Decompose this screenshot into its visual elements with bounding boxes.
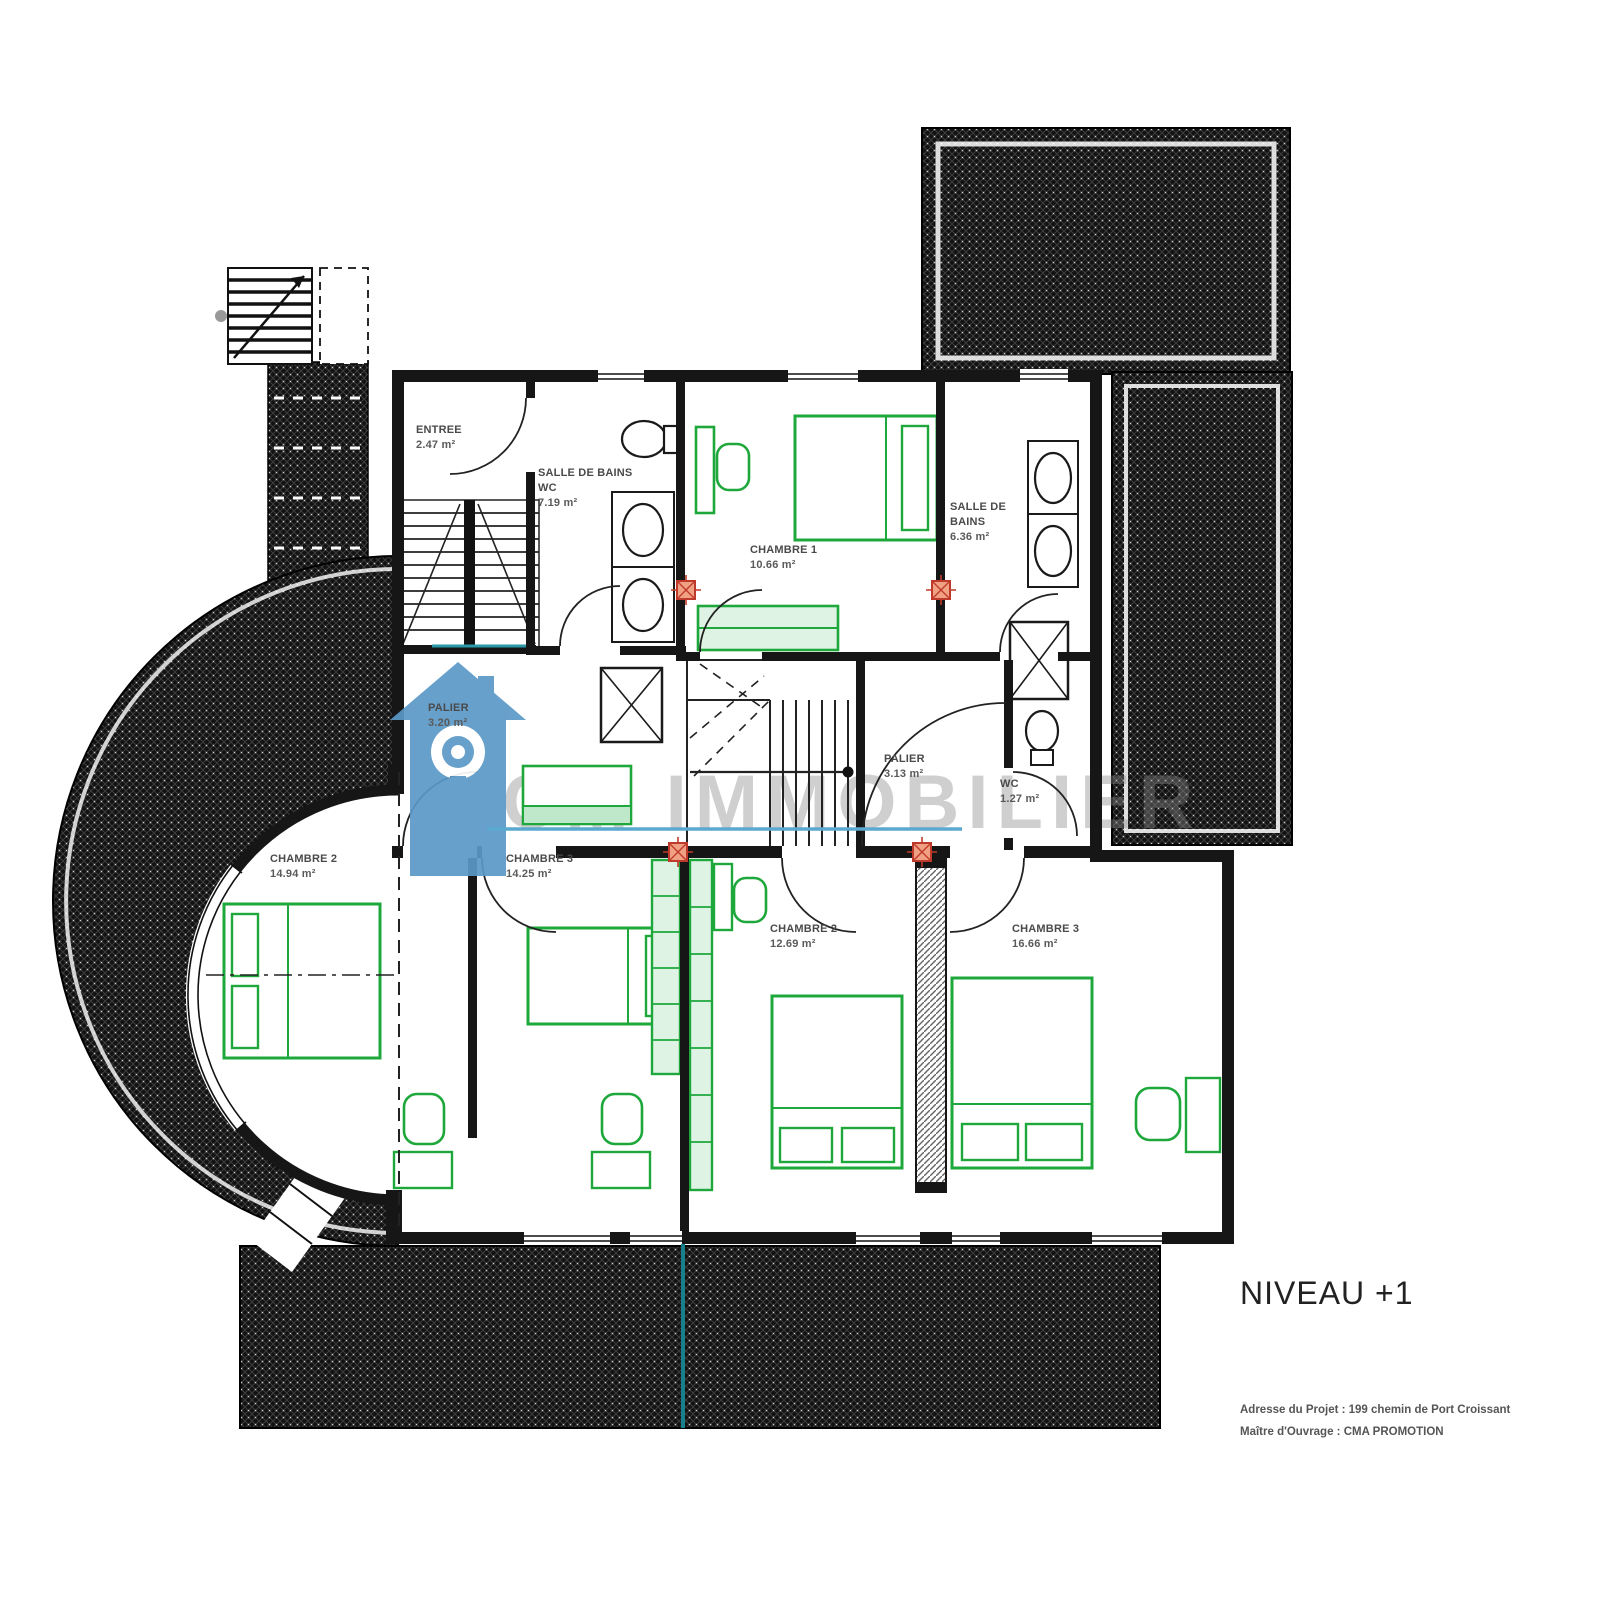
- bed: [952, 978, 1092, 1168]
- room-name: WC: [538, 481, 632, 496]
- wardrobe: [652, 860, 680, 1074]
- double-sink-icon: [1028, 441, 1078, 587]
- room-area: 2.47 m²: [416, 438, 462, 453]
- project-info: Adresse du Projet : 199 chemin de Port C…: [1240, 1400, 1510, 1444]
- room-name: CHAMBRE 1: [750, 543, 817, 558]
- project-address: Adresse du Projet : 199 chemin de Port C…: [1240, 1400, 1510, 1422]
- wardrobe: [698, 606, 838, 650]
- room-area: 12.69 m²: [770, 937, 837, 952]
- room-area: 16.66 m²: [1012, 937, 1079, 952]
- room-area: 14.94 m²: [270, 867, 337, 882]
- room-label-salle-de-bains-wc: SALLE DE BAINS WC 7.19 m²: [538, 466, 632, 511]
- bed: [795, 416, 937, 540]
- room-label-palier-gauche: PALIER 3.20 m²: [428, 701, 469, 731]
- room-area: 7.19 m²: [538, 496, 632, 511]
- project-owner: Maître d'Ouvrage : CMA PROMOTION: [1240, 1422, 1510, 1444]
- floor-plan-drawing: CM IMMOBILIER: [0, 0, 1600, 1600]
- room-label-entree: ENTREE 2.47 m²: [416, 423, 462, 453]
- room-area: 3.20 m²: [428, 716, 469, 731]
- wardrobe: [690, 860, 712, 1190]
- room-area: 14.25 m²: [506, 867, 573, 882]
- room-area: 3.13 m²: [884, 767, 925, 782]
- room-label-chambre-2-bas: CHAMBRE 2 12.69 m²: [770, 922, 837, 952]
- room-label-palier-droit: PALIER 3.13 m²: [884, 752, 925, 782]
- room-area: 1.27 m²: [1000, 792, 1039, 807]
- double-sink-icon: [612, 492, 674, 642]
- room-label-chambre-2-gauche: CHAMBRE 2 14.94 m²: [270, 852, 337, 882]
- interior-stair-west: [399, 500, 539, 648]
- room-name: CHAMBRE 2: [770, 922, 837, 937]
- room-name: CHAMBRE 2: [270, 852, 337, 867]
- toilet-icon: [622, 421, 682, 457]
- room-label-wc: WC 1.27 m²: [1000, 777, 1039, 807]
- toilet-icon: [1026, 711, 1058, 765]
- room-name: PALIER: [884, 752, 925, 767]
- room-name: CHAMBRE 3: [506, 852, 573, 867]
- room-name: PALIER: [428, 701, 469, 716]
- room-name: WC: [1000, 777, 1039, 792]
- room-label-chambre-3-droit: CHAMBRE 3 16.66 m²: [1012, 922, 1079, 952]
- exterior-stair-top-left: [215, 268, 368, 364]
- room-name: SALLE DE BAINS: [538, 466, 632, 481]
- level-title: NIVEAU +1: [1240, 1276, 1414, 1311]
- structural-wall-hatched: [916, 858, 946, 1192]
- room-area: 10.66 m²: [750, 558, 817, 573]
- wardrobe: [523, 766, 631, 824]
- room-name: ENTREE: [416, 423, 462, 438]
- room-label-chambre-3-gauche: CHAMBRE 3 14.25 m²: [506, 852, 573, 882]
- floor-plan-page: CM IMMOBILIER: [0, 0, 1600, 1600]
- shower-icon: [601, 668, 662, 742]
- room-label-chambre-1: CHAMBRE 1 10.66 m²: [750, 543, 817, 573]
- bed: [772, 996, 902, 1168]
- room-label-salle-de-bains: SALLE DE BAINS 6.36 m²: [950, 500, 1014, 545]
- bed: [224, 904, 380, 1058]
- room-name: CHAMBRE 3: [1012, 922, 1079, 937]
- room-area: 6.36 m²: [950, 530, 1014, 545]
- room-name: SALLE DE BAINS: [950, 500, 1014, 530]
